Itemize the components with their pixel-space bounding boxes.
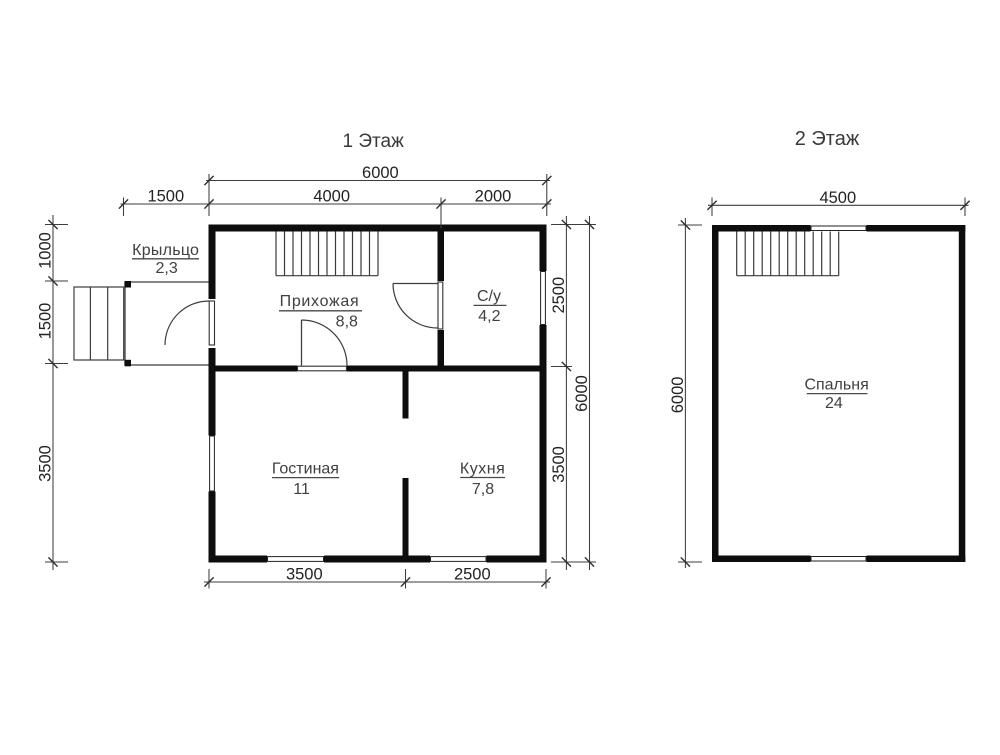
svg-text:1500: 1500 — [147, 188, 184, 206]
svg-text:3500: 3500 — [286, 566, 323, 584]
svg-text:2500: 2500 — [550, 277, 568, 314]
svg-text:Прихожая: Прихожая — [280, 293, 360, 310]
svg-text:3500: 3500 — [550, 446, 568, 483]
svg-text:8,8: 8,8 — [336, 313, 358, 330]
svg-text:6000: 6000 — [573, 375, 591, 412]
svg-text:11: 11 — [293, 481, 310, 498]
svg-text:Кухня: Кухня — [460, 461, 505, 478]
svg-text:1 Этаж: 1 Этаж — [343, 131, 405, 152]
svg-text:4,2: 4,2 — [478, 308, 500, 325]
svg-text:6000: 6000 — [362, 164, 399, 182]
svg-text:3500: 3500 — [37, 445, 55, 482]
svg-text:С/у: С/у — [477, 288, 501, 305]
svg-text:Спальня: Спальня — [804, 377, 868, 394]
svg-text:2500: 2500 — [454, 566, 491, 584]
svg-text:2000: 2000 — [475, 188, 512, 206]
svg-text:4000: 4000 — [313, 188, 350, 206]
svg-text:1000: 1000 — [37, 232, 55, 269]
svg-text:2 Этаж: 2 Этаж — [795, 128, 860, 150]
svg-text:Крыльцо: Крыльцо — [132, 242, 199, 259]
svg-text:7,8: 7,8 — [472, 481, 494, 498]
svg-text:24: 24 — [825, 395, 843, 412]
svg-text:Гостиная: Гостиная — [272, 461, 339, 478]
svg-text:1500: 1500 — [37, 303, 55, 340]
svg-text:2,3: 2,3 — [155, 260, 177, 277]
svg-text:6000: 6000 — [669, 377, 687, 414]
svg-text:4500: 4500 — [819, 189, 856, 207]
